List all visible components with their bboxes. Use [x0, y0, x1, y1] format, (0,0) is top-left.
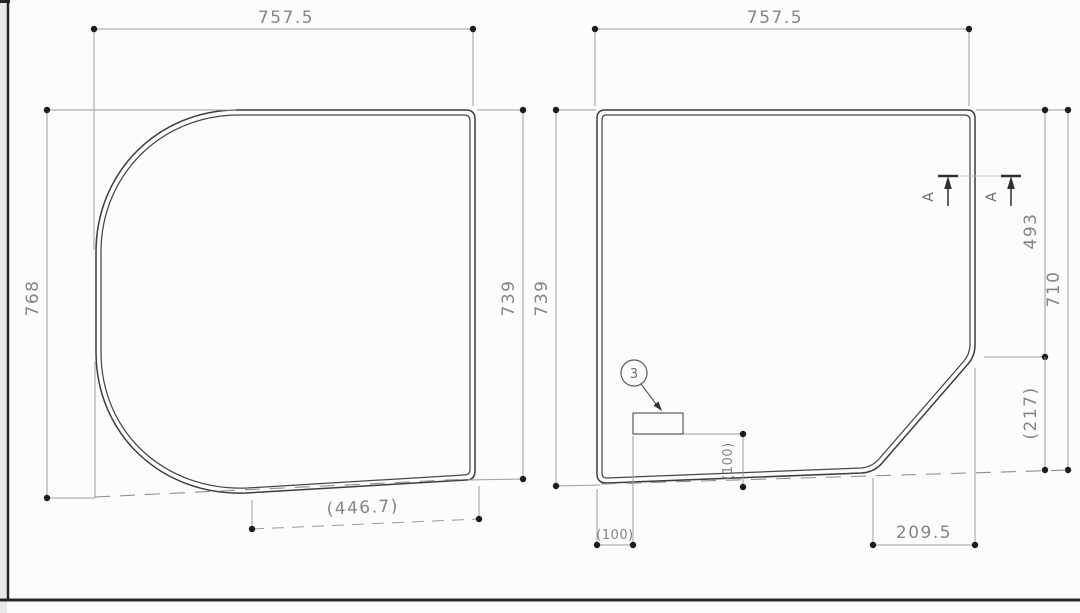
right-100v-dim-label: (100)	[721, 442, 736, 479]
right-2095-dim-label: 209.5	[896, 523, 952, 543]
dim-point	[520, 107, 526, 113]
callout-number: 3	[630, 367, 638, 382]
dim-point	[249, 526, 255, 532]
dim-point	[870, 542, 876, 548]
dim-point	[470, 26, 476, 32]
right-100b-dim-label: (100)	[596, 528, 633, 543]
dim-point	[553, 483, 559, 489]
dim-point	[740, 431, 746, 437]
section-label-left: A	[921, 192, 937, 202]
dim-point	[44, 495, 50, 501]
right-baseline-dashed	[601, 470, 1068, 484]
right-top-dim-label: 757.5	[747, 8, 803, 28]
dim-point	[966, 26, 972, 32]
section-markers: A A	[921, 176, 1021, 206]
left-height-dim-label: 768	[23, 280, 43, 317]
right-left-dim-ext-bottom	[556, 485, 600, 486]
left-top-dim-label: 757.5	[258, 8, 314, 28]
scan-margin-strip	[0, 0, 7, 613]
left-bottom-dim-line	[252, 519, 479, 529]
right-panel-inner-outline	[602, 115, 970, 478]
dim-point	[972, 542, 978, 548]
left-panel-inner-outline	[101, 115, 470, 488]
section-label-right: A	[984, 192, 1000, 202]
dim-point	[1042, 107, 1048, 113]
left-right-dim-ext-bottom	[468, 479, 523, 480]
callout-3: 3	[621, 360, 683, 434]
left-baseline-dashed	[95, 479, 470, 497]
right-710-dim-label: 710	[1044, 271, 1064, 308]
left-view: 757.5 768 739 (446.7)	[23, 8, 526, 532]
right-217-dim-label: (217)	[1021, 386, 1041, 439]
left-panel-outer-outline	[96, 110, 475, 493]
dim-point	[740, 484, 746, 490]
right-493-dim-label: 493	[1021, 213, 1041, 250]
dim-point	[1042, 467, 1048, 473]
dim-point	[1065, 107, 1071, 113]
section-arrow-up-icon	[1007, 176, 1015, 189]
section-arrow-up-icon	[944, 176, 952, 189]
right-view: 757.5 739 493 (217) 710 209.5	[532, 8, 1071, 548]
dim-point	[592, 26, 598, 32]
dim-point	[91, 26, 97, 32]
small-part-rect	[633, 413, 683, 434]
drawing-canvas: 757.5 768 739 (446.7)	[0, 0, 1080, 613]
dim-point	[520, 476, 526, 482]
drawing-svg: 757.5 768 739 (446.7)	[0, 0, 1080, 613]
right-panel-outer-outline	[597, 110, 975, 483]
right-left-dim-label: 739	[532, 280, 552, 317]
left-bottom-dim-label: (446.7)	[326, 496, 399, 519]
dim-point	[44, 107, 50, 113]
dim-point	[476, 516, 482, 522]
scan-corner-mark	[0, 0, 10, 3]
left-right-dim-label: 739	[499, 280, 519, 317]
dim-point	[553, 107, 559, 113]
